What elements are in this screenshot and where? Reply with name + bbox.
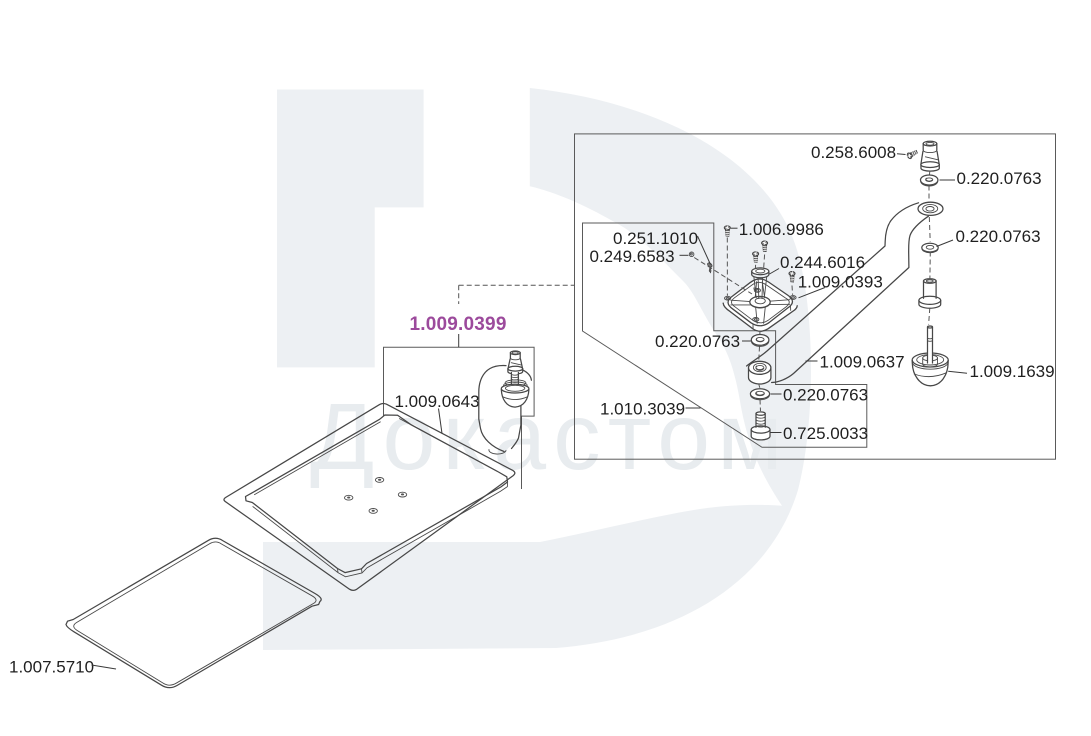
svg-text:0.220.0763: 0.220.0763 <box>655 332 740 351</box>
svg-text:0.244.6016: 0.244.6016 <box>780 253 865 272</box>
svg-text:0.220.0763: 0.220.0763 <box>957 169 1042 188</box>
svg-text:0.725.0033: 0.725.0033 <box>783 424 868 443</box>
svg-text:1.007.5710: 1.007.5710 <box>9 658 94 677</box>
svg-text:0.258.6008: 0.258.6008 <box>811 143 896 162</box>
svg-text:1.006.9986: 1.006.9986 <box>739 220 824 239</box>
svg-text:1.009.0393: 1.009.0393 <box>798 273 883 292</box>
svg-text:Докастом: Докастом <box>310 384 790 490</box>
svg-text:1.009.0637: 1.009.0637 <box>820 353 905 372</box>
svg-text:1.009.0399: 1.009.0399 <box>410 314 507 335</box>
svg-text:1.009.0643: 1.009.0643 <box>395 392 480 411</box>
svg-text:0.220.0763: 0.220.0763 <box>956 227 1041 246</box>
svg-text:0.249.6583: 0.249.6583 <box>590 247 675 266</box>
svg-text:1.009.1639: 1.009.1639 <box>970 362 1055 381</box>
svg-text:0.220.0763: 0.220.0763 <box>783 386 868 405</box>
svg-text:0.251.1010: 0.251.1010 <box>613 229 698 248</box>
svg-text:1.010.3039: 1.010.3039 <box>600 400 685 419</box>
